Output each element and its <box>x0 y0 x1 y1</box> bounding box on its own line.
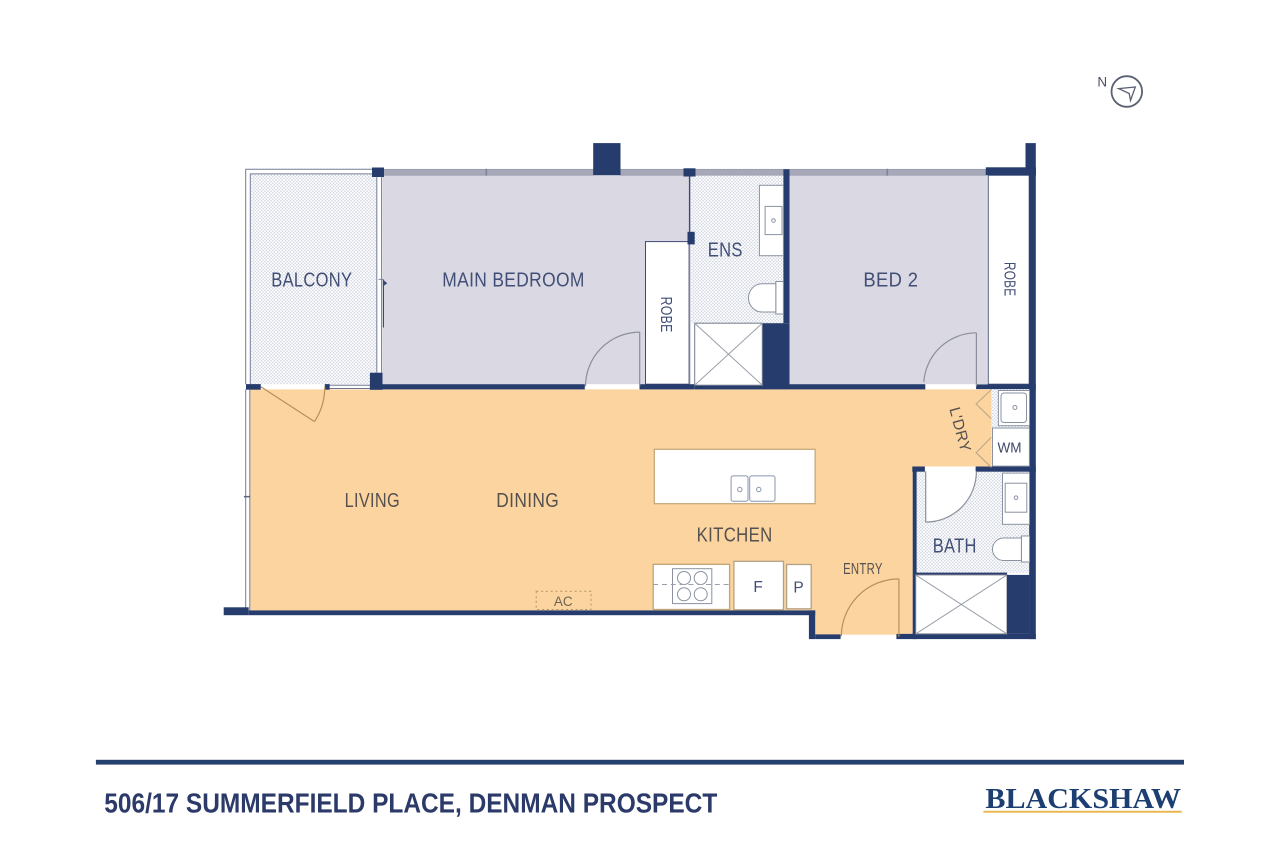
svg-text:BATH: BATH <box>933 535 977 558</box>
svg-text:MAIN BEDROOM: MAIN BEDROOM <box>442 268 584 291</box>
svg-text:WM: WM <box>998 439 1022 456</box>
svg-text:N: N <box>1097 75 1107 90</box>
svg-text:ROBE: ROBE <box>657 297 674 333</box>
svg-text:ROBE: ROBE <box>1001 262 1018 297</box>
svg-text:ENS: ENS <box>708 239 743 262</box>
svg-text:506/17 SUMMERFIELD PLACE, DENM: 506/17 SUMMERFIELD PLACE, DENMAN PROSPEC… <box>104 788 717 819</box>
svg-text:BLACKSHAW: BLACKSHAW <box>985 784 1181 815</box>
svg-text:BED 2: BED 2 <box>863 268 918 291</box>
svg-text:P: P <box>793 579 804 596</box>
svg-text:ENTRY: ENTRY <box>843 561 883 578</box>
svg-text:DINING: DINING <box>496 489 559 512</box>
svg-text:BALCONY: BALCONY <box>271 268 352 291</box>
svg-text:LIVING: LIVING <box>345 489 400 512</box>
svg-text:AC: AC <box>554 594 573 609</box>
svg-text:F: F <box>753 579 763 596</box>
svg-text:KITCHEN: KITCHEN <box>697 524 773 547</box>
